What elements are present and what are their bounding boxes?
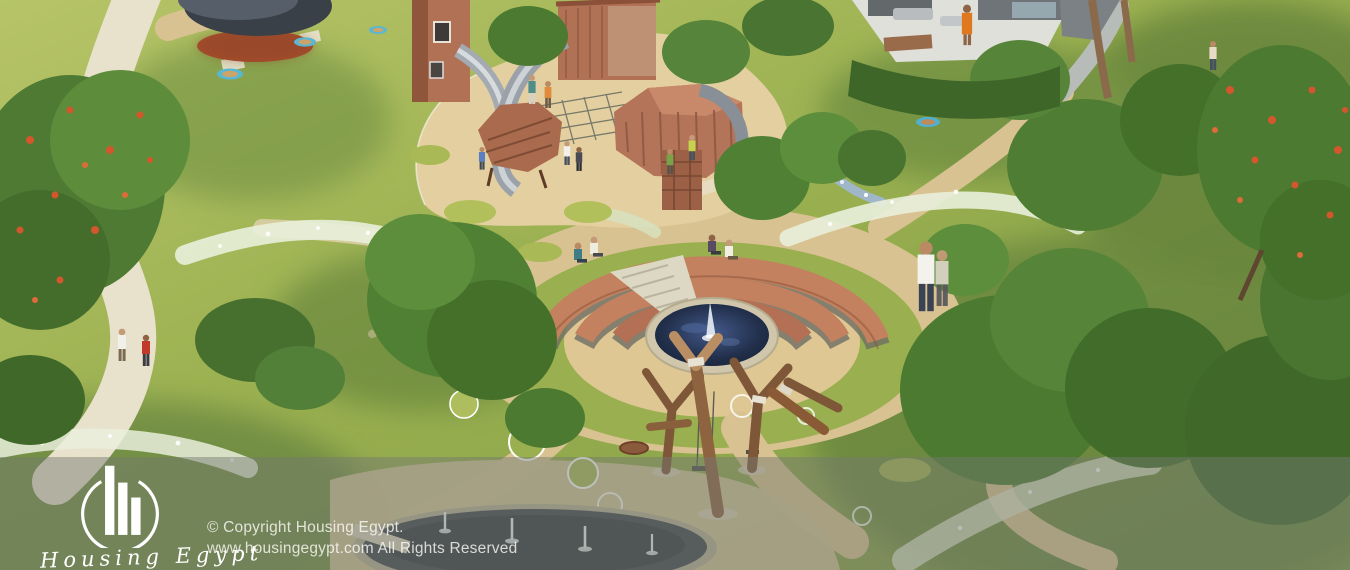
building-bars-circle-icon <box>60 462 180 548</box>
spinner-dish <box>620 442 648 454</box>
copyright-line-2: www.housingegypt.com All Rights Reserved <box>207 538 517 559</box>
fountain <box>646 298 778 374</box>
copyright-line-1: © Copyright Housing Egypt. <box>207 517 517 538</box>
park-aerial-render: Housing Egypt © Copyright Housing Egypt.… <box>0 0 1350 570</box>
watermark-overlay: Housing Egypt © Copyright Housing Egypt.… <box>0 457 1350 570</box>
brand-name: Housing Egypt <box>40 543 201 570</box>
housing-egypt-logo: Housing Egypt <box>40 462 200 570</box>
copyright-text: © Copyright Housing Egypt. www.housingeg… <box>207 517 517 559</box>
